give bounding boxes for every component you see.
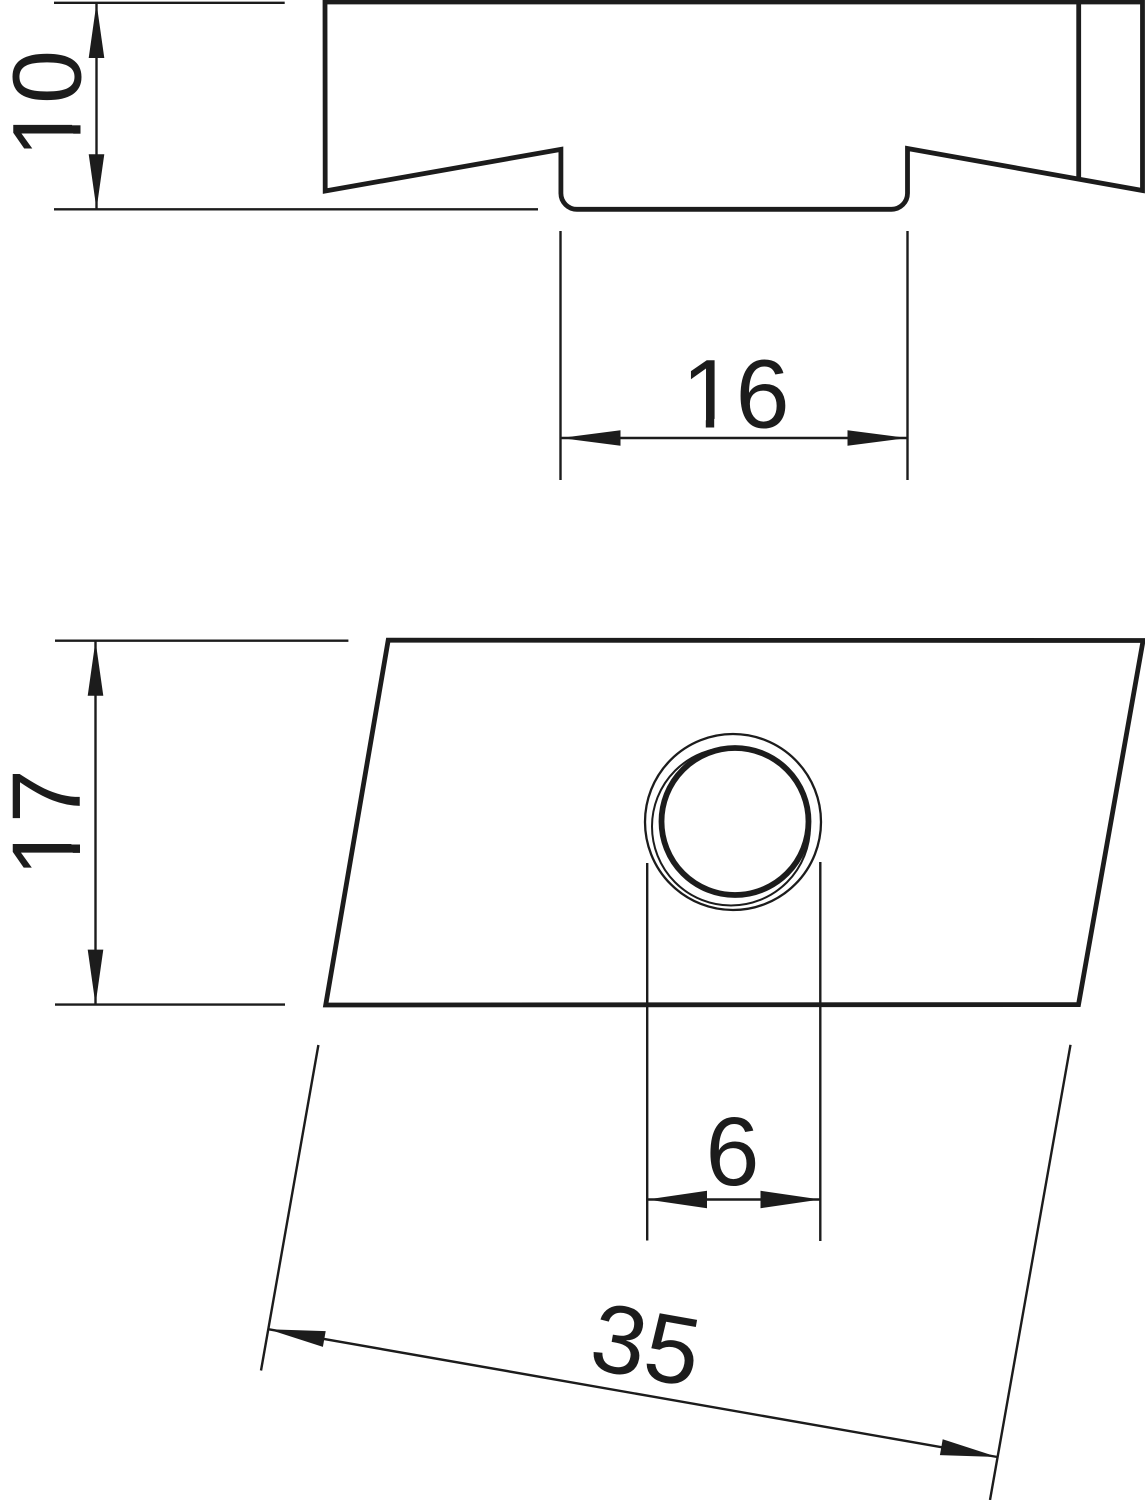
svg-text:35: 35 (583, 1282, 708, 1408)
svg-text:17: 17 (0, 769, 101, 877)
svg-text:16: 16 (682, 340, 790, 449)
svg-text:10: 10 (0, 50, 102, 158)
svg-text:6: 6 (706, 1097, 760, 1206)
